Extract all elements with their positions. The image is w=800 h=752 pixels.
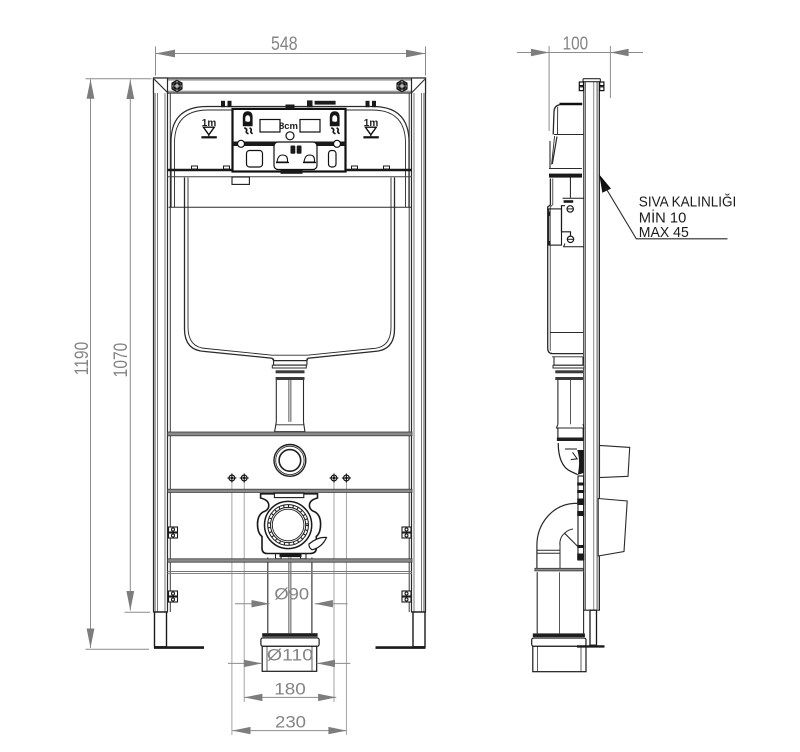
svg-text:8cm: 8cm <box>279 121 298 132</box>
svg-text:Ø90: Ø90 <box>274 586 309 604</box>
svg-text:1190: 1190 <box>70 342 92 376</box>
svg-text:MAX 45: MAX 45 <box>639 224 689 241</box>
svg-text:180: 180 <box>274 680 306 699</box>
svg-text:1070: 1070 <box>109 343 131 378</box>
svg-text:100: 100 <box>563 34 589 54</box>
svg-text:SIVA KALINLIĞI: SIVA KALINLIĞI <box>639 193 737 210</box>
svg-text:548: 548 <box>271 34 298 55</box>
svg-text:Ø110: Ø110 <box>267 647 313 665</box>
svg-text:230: 230 <box>275 713 306 732</box>
